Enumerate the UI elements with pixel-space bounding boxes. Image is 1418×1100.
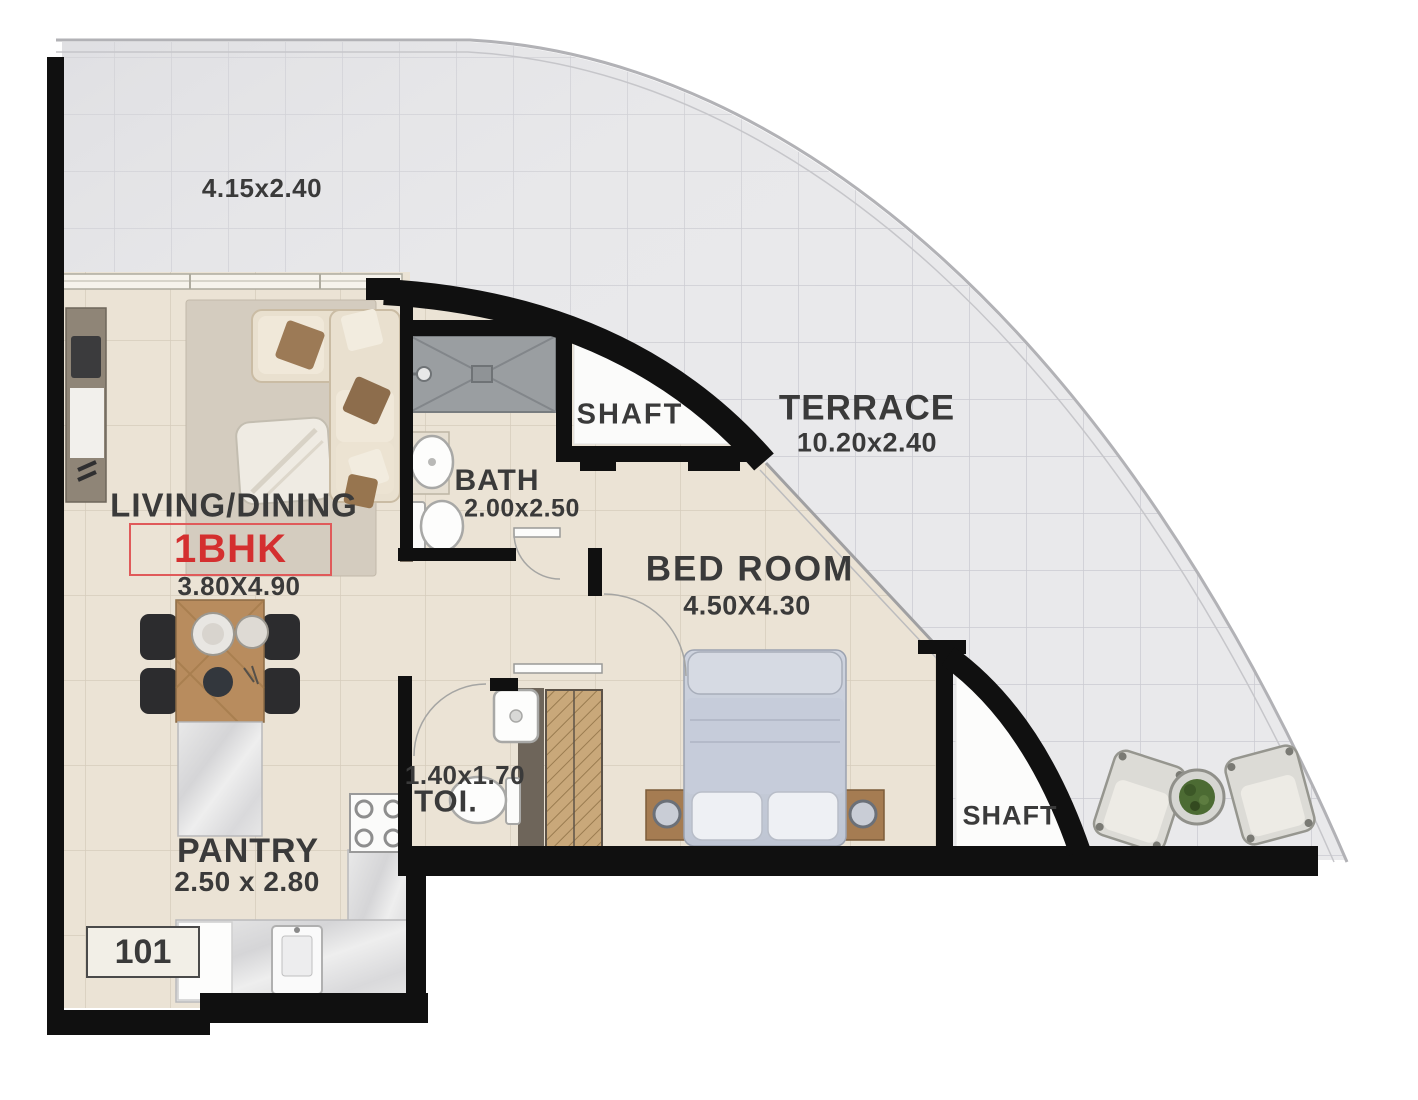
tv bbox=[71, 336, 101, 378]
pantry-dimension: 2.50 x 2.80 bbox=[174, 868, 320, 896]
shower-drain bbox=[472, 366, 492, 382]
bedroom-label: BED ROOM bbox=[646, 552, 855, 587]
wall-bottom-main bbox=[398, 846, 1318, 876]
wall-bottom-pantry bbox=[200, 993, 428, 1023]
wall-toi-top-stub bbox=[490, 678, 518, 691]
bath-dimension: 2.00x2.50 bbox=[464, 497, 580, 522]
unit-type-label: 1BHK bbox=[174, 527, 287, 572]
unit-number: 101 bbox=[115, 933, 172, 972]
terrace-upper-dimension: 4.15x2.40 bbox=[202, 175, 322, 201]
pillow bbox=[692, 792, 762, 840]
terrace-dimension: 10.20x2.40 bbox=[797, 430, 937, 457]
bowl bbox=[203, 667, 233, 697]
wall-stub bbox=[580, 462, 616, 471]
plate bbox=[236, 616, 268, 648]
wall-bottom-left bbox=[47, 1010, 210, 1035]
wall-stub bbox=[688, 462, 740, 471]
bath-toilet bbox=[410, 501, 463, 551]
bed bbox=[684, 650, 846, 846]
dining-chair bbox=[140, 668, 178, 714]
floor-plan: 4.15x2.40 TERRACE 10.20x2.40 SHAFT BATH … bbox=[0, 0, 1418, 1100]
bedroom-door bbox=[514, 664, 602, 673]
kitchen-island bbox=[178, 722, 262, 836]
wall-bath-bottom bbox=[398, 548, 516, 561]
wall-left bbox=[47, 57, 64, 1035]
bath-door bbox=[514, 528, 560, 537]
bath-label: BATH bbox=[454, 466, 539, 496]
toi-label: TOI. bbox=[414, 786, 478, 817]
wall-shaft2-left bbox=[936, 648, 953, 860]
terrace-label: TERRACE bbox=[779, 391, 955, 426]
bedside-lamp bbox=[850, 801, 876, 827]
shower-head bbox=[417, 367, 431, 381]
wall-bath-shaft bbox=[556, 332, 572, 458]
dining-chair bbox=[262, 668, 300, 714]
wall-hall bbox=[588, 548, 602, 596]
bedroom-dimension: 4.50X4.30 bbox=[683, 593, 811, 620]
pantry-label: PANTRY bbox=[177, 834, 319, 868]
dining-chair bbox=[140, 614, 178, 660]
living-dimension: 3.80X4.90 bbox=[177, 573, 300, 599]
wall-bath-top bbox=[402, 320, 560, 336]
unit-number-box: 101 bbox=[86, 926, 200, 978]
bedside-lamp bbox=[654, 801, 680, 827]
bed-footboard bbox=[688, 652, 842, 694]
living-label: LIVING/DINING bbox=[110, 489, 358, 522]
unit-type-box: 1BHK bbox=[129, 523, 332, 576]
shaft-bottom-label: SHAFT bbox=[963, 803, 1058, 830]
shaft-top-label: SHAFT bbox=[577, 401, 684, 430]
pillow bbox=[768, 792, 838, 840]
terrace-table-plant bbox=[1170, 770, 1224, 824]
wall-shaft-bottom bbox=[556, 446, 748, 462]
tv-console bbox=[66, 308, 106, 502]
